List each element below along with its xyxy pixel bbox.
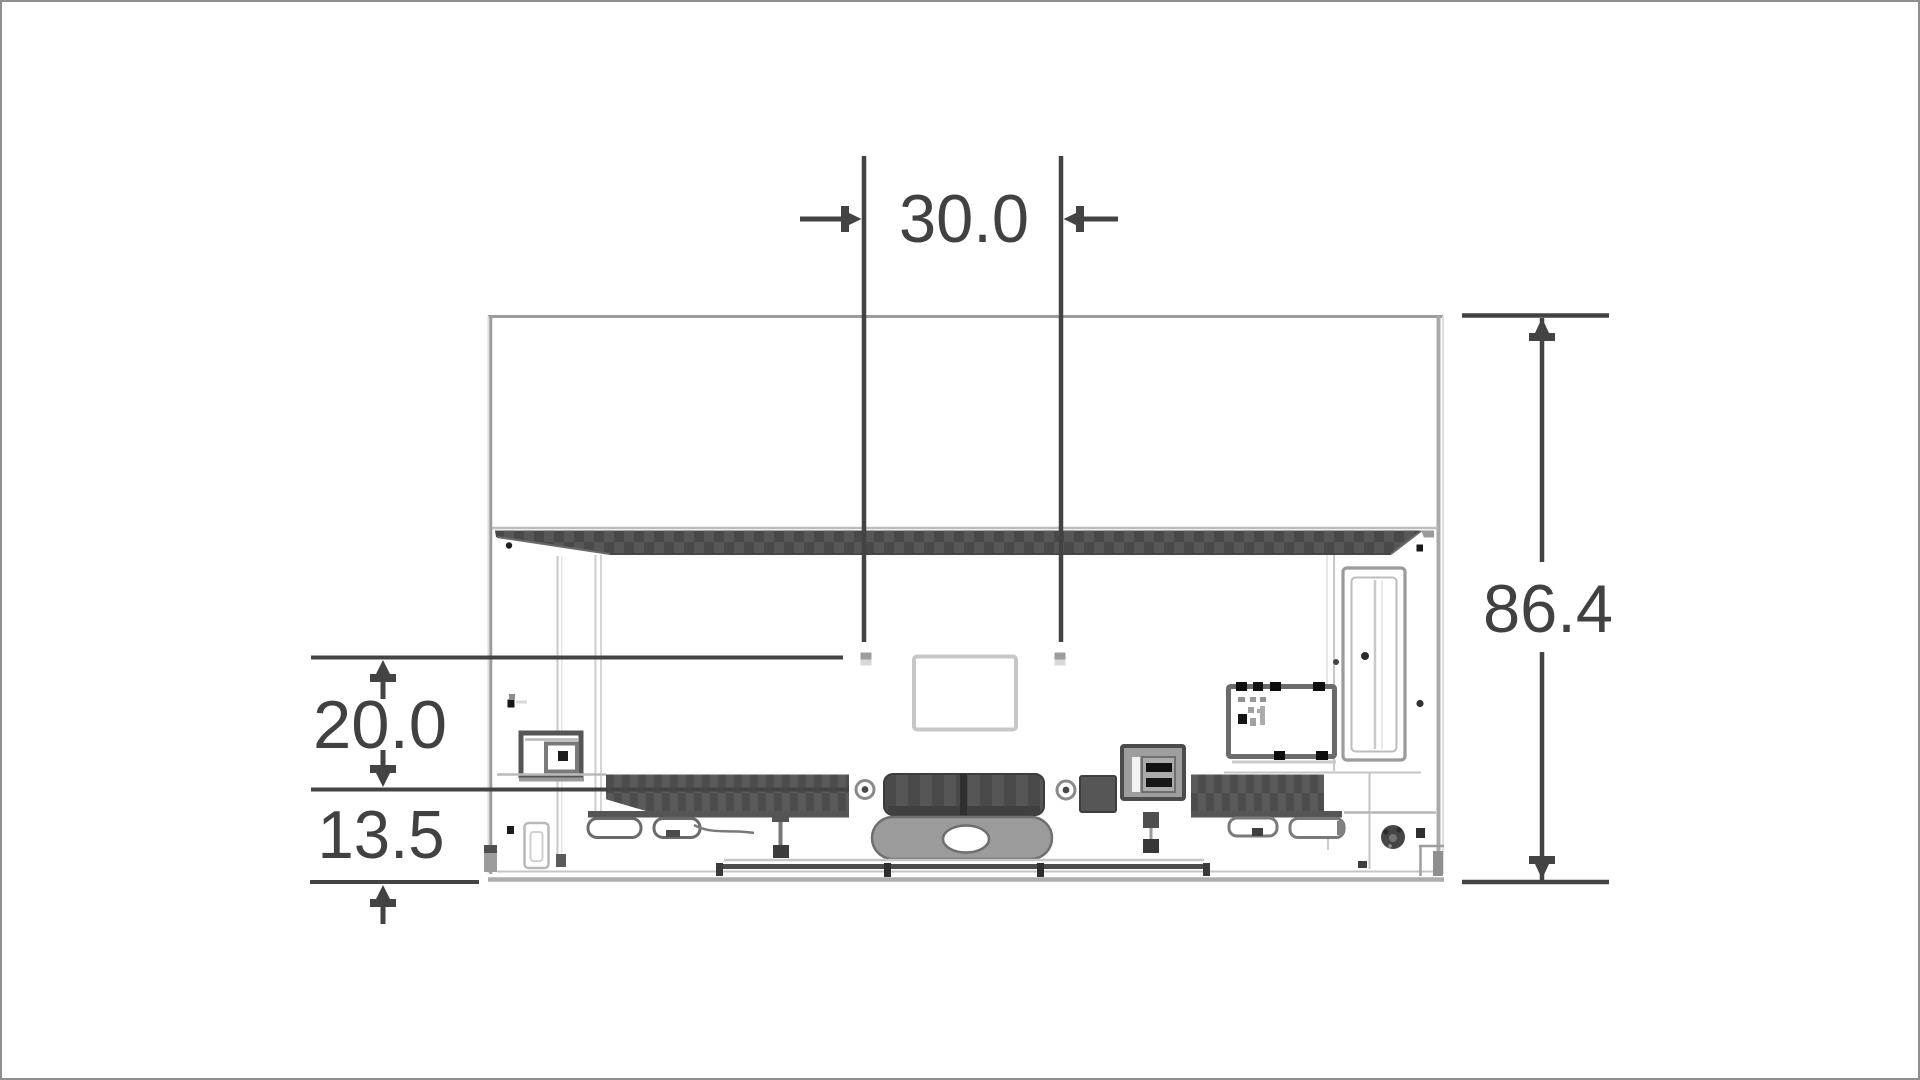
svg-text:30.0: 30.0 xyxy=(899,181,1029,257)
svg-text:13.5: 13.5 xyxy=(318,797,445,873)
svg-text:86.4: 86.4 xyxy=(1483,571,1613,647)
svg-text:20.0: 20.0 xyxy=(313,687,447,763)
